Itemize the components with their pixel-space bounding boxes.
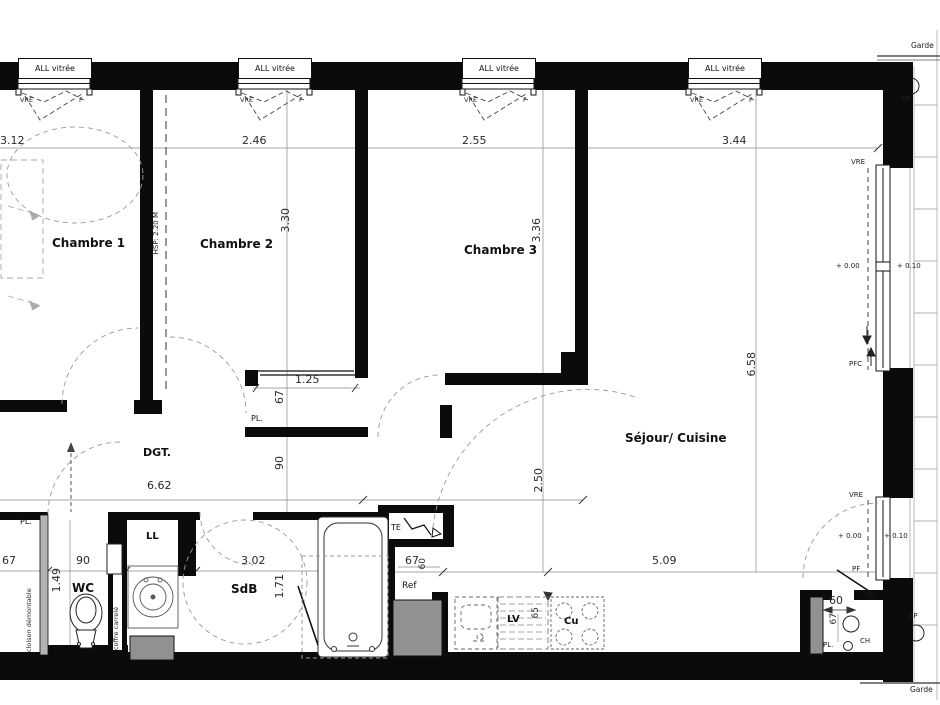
level-inside-2: + 0.00: [838, 533, 862, 540]
window-label-4: ALL vitrée: [688, 58, 762, 79]
room-label-sejour: Séjour/ Cuisine: [625, 432, 727, 444]
cloison-demontable-partition: [40, 515, 48, 655]
dishwasher: [498, 597, 548, 649]
ceiling-height-note: HSP: 2.20 M: [153, 212, 160, 254]
vre-window-right-1: VRE: [851, 159, 865, 166]
f-label: F: [523, 97, 527, 104]
floor-plan: ALL vitrée ALL vitrée ALL vitrée ALL vit…: [0, 0, 940, 705]
dim-sejour-mid: 2.50: [533, 468, 544, 493]
dim-chambre3-depth: 3.36: [531, 218, 542, 243]
dishwasher-label: LV: [507, 615, 520, 625]
vre-label: VRE: [20, 97, 33, 104]
dim-left-closet: 67: [2, 555, 16, 566]
dim-ch-closet-width: 60: [829, 595, 843, 606]
door-arc-sejour: [433, 389, 638, 528]
dim-wc-depth: 1.49: [51, 568, 62, 593]
washing-machine-label: LL: [146, 532, 159, 542]
window-label-1: ALL vitrée: [18, 58, 92, 79]
window-frame-2: [236, 78, 312, 95]
door-arc-chambre1: [62, 328, 138, 404]
vre-window-right-2: VRE: [849, 492, 863, 499]
dim-wc-width: 90: [76, 555, 90, 566]
garde-corps-label-bottom: Garde: [910, 686, 933, 694]
room-label-wc: WC: [72, 582, 94, 594]
dim-ref-width: 67: [405, 555, 419, 566]
door-arc-wc: [48, 442, 120, 514]
furniture-dashed-chambre1: [1, 160, 43, 310]
closet-label-hall: PL.: [251, 415, 263, 423]
garde-corps-label-top: Garde: [911, 42, 934, 50]
floorplan-drawing: [0, 0, 940, 705]
ep-label-bottom: EP: [909, 613, 918, 620]
level-inside-1: + 0.00: [836, 263, 860, 270]
room-label-chambre3: Chambre 3: [464, 244, 537, 256]
door-arcs: [7, 127, 878, 644]
f-label: F: [79, 97, 83, 104]
window-frame-1: [16, 78, 92, 95]
coffre-carrele-note: coffre carrelé: [113, 572, 120, 650]
fridge-block: [393, 600, 442, 656]
dim-top-sejour: 3.44: [722, 135, 747, 146]
dim-sejour-depth: 6.58: [746, 352, 757, 377]
dim-ch-closet-depth: 67: [830, 613, 839, 624]
window-label-2: ALL vitrée: [238, 58, 312, 79]
dim-top-chambre2: 2.46: [242, 135, 267, 146]
room-label-sdb: SdB: [231, 583, 257, 595]
dim-sejour-width: 5.09: [652, 555, 677, 566]
door-arc-chambre2: [170, 337, 246, 413]
room-label-dgt: DGT.: [143, 447, 171, 458]
dim-closet-depth: 67: [274, 390, 285, 404]
turning-circle-chambre1: [7, 127, 143, 223]
window-opening-symbols: [22, 91, 754, 120]
level-outside-1: + 0.10: [897, 263, 921, 270]
washbasin: [128, 566, 178, 628]
cloison-demontable-note: cloison démontable: [26, 522, 33, 652]
room-label-chambre1: Chambre 1: [52, 237, 125, 249]
vre-label: VRE: [240, 97, 253, 104]
closet-label-right: PL.: [823, 642, 833, 649]
dim-dgt-width: 90: [274, 456, 285, 470]
window-frame-balcony-1: [876, 165, 890, 371]
dim-closet-width: 1.25: [295, 374, 320, 385]
room-label-chambre2: Chambre 2: [200, 238, 273, 250]
f-label: F: [299, 97, 303, 104]
window-label-3: ALL vitrée: [462, 58, 536, 79]
f-label: F: [749, 97, 753, 104]
dim-dgt-length: 6.62: [147, 480, 172, 491]
closet-partition: [810, 597, 823, 654]
door-arc-chambre3: [378, 375, 440, 437]
hob-label: Cu: [564, 617, 578, 627]
ll-block: [130, 636, 174, 660]
kitchen-sink: [455, 597, 497, 649]
dim-top-chambre3: 2.55: [462, 135, 487, 146]
fridge-label: Ref: [402, 582, 417, 591]
dim-sdb-depth: 1.71: [274, 574, 285, 599]
electrical-panel-label: TE: [391, 524, 401, 532]
duct-box: [107, 544, 122, 574]
dim-ref-depth: 60: [419, 558, 428, 569]
dim-lv-depth: 65: [532, 607, 541, 618]
pf-label: PF: [852, 566, 860, 573]
dim-top-chambre1: 3.12: [0, 135, 25, 146]
pfc-label: PFC: [849, 361, 862, 368]
bathtub: [318, 517, 388, 657]
water-heater: [843, 616, 859, 651]
level-arrows: [863, 326, 875, 366]
dim-sdb-width: 3.02: [241, 555, 266, 566]
window-frame-4: [686, 78, 762, 95]
toilet: [70, 594, 102, 648]
water-heater-label: CH: [860, 638, 870, 645]
gray-blocks: [130, 597, 823, 660]
level-outside-2: + 0.10: [884, 533, 908, 540]
vre-label: VRE: [690, 97, 703, 104]
window-frame-3: [460, 78, 536, 95]
door-arc-balcony: [803, 503, 878, 578]
vre-label: VRE: [464, 97, 477, 104]
ep-label-top: EP: [902, 96, 911, 103]
dim-chambre2-depth: 3.30: [280, 208, 291, 233]
